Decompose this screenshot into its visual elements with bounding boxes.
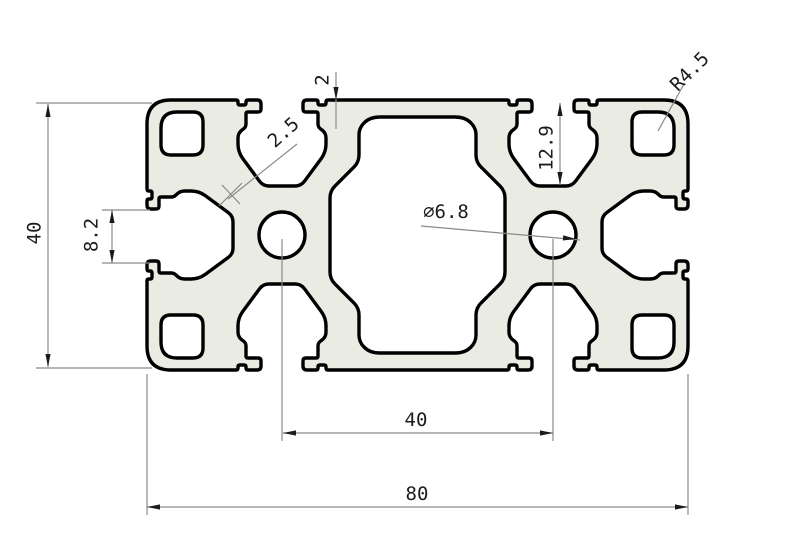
dim-height-label: 40 — [24, 222, 46, 245]
dim-slot-depth-label: 12.9 — [536, 125, 558, 171]
dimension-arrowhead — [109, 210, 114, 223]
dim-hole-diameter-label: ∅6.8 — [423, 201, 469, 223]
dimension-arrowhead — [540, 430, 553, 435]
dimension-arrowhead — [675, 504, 688, 509]
technical-drawing-page: 40 8.2 2.5 2 12.9 ∅6.8 R4.5 40 80 — [0, 0, 804, 557]
dimension-arrowhead — [557, 103, 562, 116]
dim-slot-opening-label: 8.2 — [81, 218, 103, 252]
dimension-arrowhead — [147, 504, 160, 509]
extrusion-profile-outline — [147, 100, 688, 370]
dimension-arrowhead — [109, 250, 114, 263]
dim-corner-radius-label: R4.5 — [666, 48, 714, 96]
dimension-arrowhead — [45, 104, 50, 117]
dimension-arrowhead — [45, 354, 50, 367]
drawing-canvas: 40 8.2 2.5 2 12.9 ∅6.8 R4.5 40 80 — [0, 0, 804, 557]
dim-wall-thickness-label: 2 — [312, 74, 334, 85]
dimension-arrowhead — [283, 430, 296, 435]
dim-web-thickness-label: 2.5 — [264, 113, 304, 152]
dim-hole-spacing-label: 40 — [405, 409, 428, 431]
dimension-arrowhead — [333, 87, 338, 100]
dim-width-label: 80 — [406, 483, 429, 505]
dimension-arrowhead — [557, 172, 562, 185]
dimension-line — [421, 226, 580, 240]
